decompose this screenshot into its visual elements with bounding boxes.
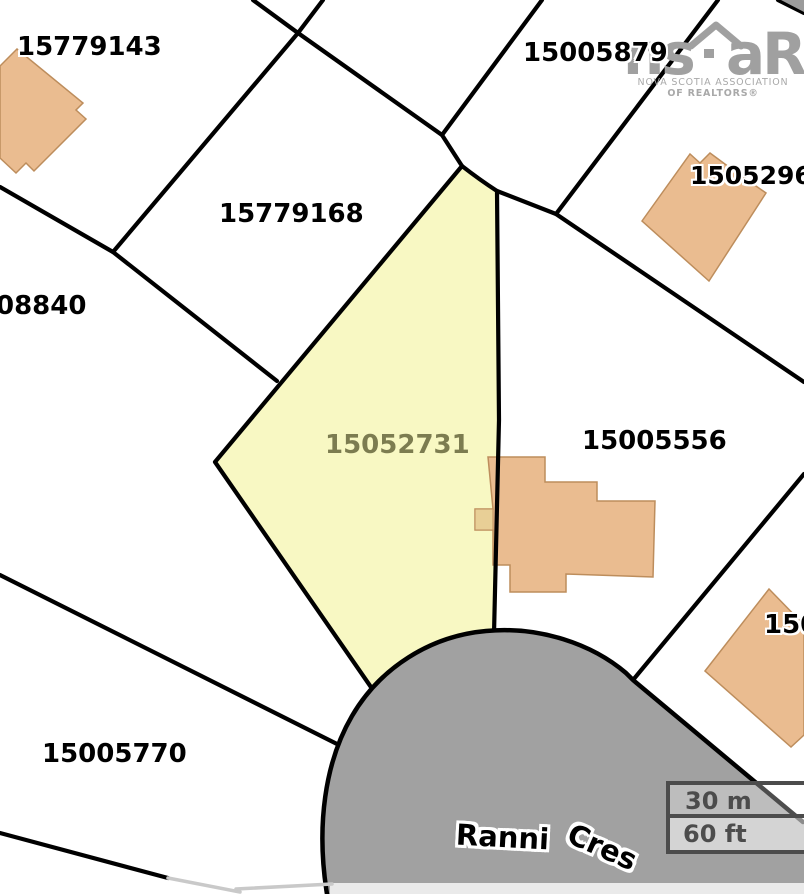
scale-bar-imperial-label: 60 ft <box>683 822 747 846</box>
logo-caption-realtors: OF REALTORS® <box>624 89 802 99</box>
parcel-map[interactable]: ns aR 15779143 15005879 15052960 1577916… <box>0 0 804 894</box>
parcel-label-15005556: 15005556 <box>582 428 727 454</box>
building-footprint-nw <box>0 49 86 173</box>
parcel-label-15779143: 15779143 <box>17 34 162 60</box>
faint-boundary-bottom <box>236 884 332 889</box>
logo-chimney-dot <box>704 49 714 58</box>
parcel-label-15052960: 15052960 <box>690 163 804 188</box>
road-name-first: Ranni <box>455 818 550 857</box>
parcel-label-15779168: 15779168 <box>219 201 364 227</box>
road-name-label: Ranni Cres <box>456 820 632 854</box>
building-wing-overlap <box>475 509 493 530</box>
scale-bar-rule-bottom <box>666 850 804 854</box>
boundary-bottom-left <box>0 833 168 878</box>
subject-parcel-polygon[interactable] <box>215 166 499 690</box>
parcel-label-150-partial: 150 <box>764 612 804 638</box>
logo-caption-association: NOVA SCOTIA ASSOCIATION <box>624 78 802 88</box>
building-footprint-center <box>475 457 655 592</box>
scale-bar-rule-top <box>666 781 804 785</box>
road-shoulder-strip <box>330 883 804 894</box>
parcel-label-15005770: 15005770 <box>42 741 187 767</box>
parcel-label-15005879: 15005879 <box>523 40 668 66</box>
boundary-southwest-long <box>0 575 345 748</box>
scale-bar-metric-label: 30 m <box>685 789 752 813</box>
parcel-label-15052731: 15052731 <box>325 432 470 458</box>
parcel-label-08840: 08840 <box>0 293 86 319</box>
faint-boundary-bottom-left <box>168 878 240 892</box>
